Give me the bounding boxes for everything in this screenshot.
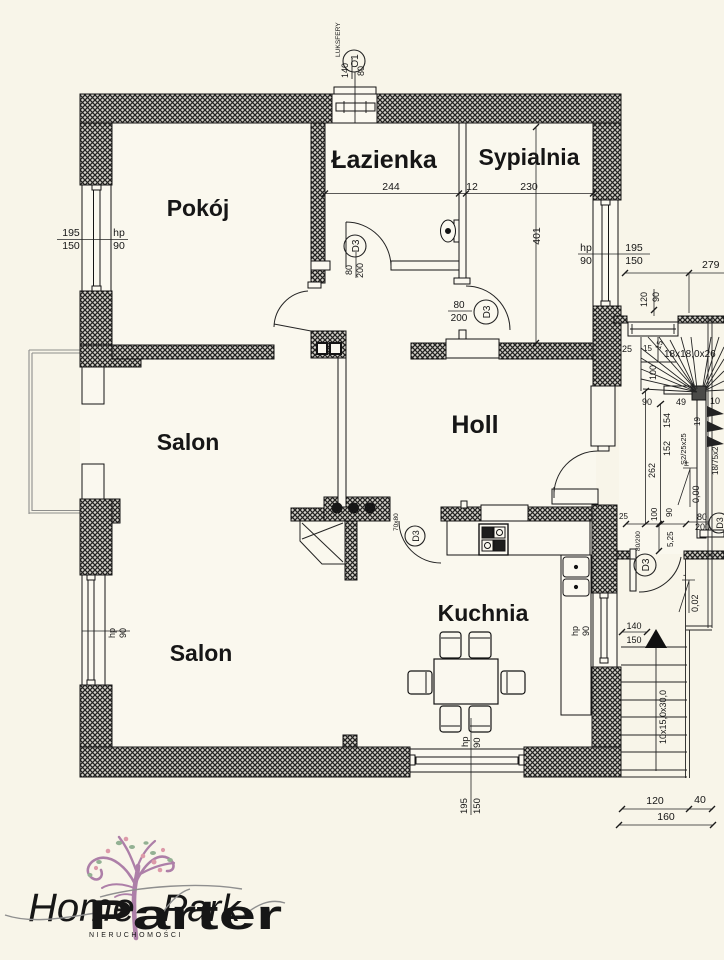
svg-text:154: 154 <box>662 413 672 428</box>
svg-text:19: 19 <box>693 417 702 426</box>
svg-text:10: 10 <box>710 396 720 406</box>
svg-text:120: 120 <box>646 795 664 807</box>
svg-text:LUKSFERY: LUKSFERY <box>335 22 342 57</box>
svg-text:70x80: 70x80 <box>393 513 400 531</box>
svg-text:195: 195 <box>459 798 470 814</box>
svg-text:140: 140 <box>626 621 641 631</box>
svg-text:Holl: Holl <box>451 411 498 439</box>
svg-text:-: - <box>683 570 686 580</box>
svg-text:Salon: Salon <box>157 429 220 455</box>
svg-text:90: 90 <box>580 255 592 267</box>
svg-text:90: 90 <box>113 240 125 252</box>
svg-text:90: 90 <box>665 508 674 517</box>
svg-text:D3: D3 <box>411 530 421 542</box>
svg-text:152: 152 <box>662 441 672 456</box>
svg-text:5,25: 5,25 <box>666 531 675 547</box>
svg-text:25: 25 <box>619 512 628 521</box>
svg-text:D3: D3 <box>482 305 493 318</box>
svg-text:90: 90 <box>118 628 128 638</box>
svg-text:hp: hp <box>580 242 592 254</box>
svg-text:80: 80 <box>344 265 354 275</box>
svg-text:Sypialnia: Sypialnia <box>479 144 580 170</box>
svg-text:90: 90 <box>642 397 652 407</box>
svg-text:D3: D3 <box>351 239 362 252</box>
svg-text:18/75x2: 18/75x2 <box>711 446 720 475</box>
svg-text:15: 15 <box>643 344 652 353</box>
svg-text:0,02: 0,02 <box>690 594 700 612</box>
svg-text:160: 160 <box>657 811 675 823</box>
svg-text:D3: D3 <box>715 517 724 529</box>
svg-text:18x18,0x26: 18x18,0x26 <box>664 349 716 360</box>
svg-text:Pokój: Pokój <box>167 195 230 221</box>
svg-text:80: 80 <box>697 512 707 522</box>
svg-text:40: 40 <box>694 794 706 806</box>
svg-text:279: 279 <box>702 259 720 271</box>
svg-text:hp: hp <box>107 628 117 638</box>
svg-text:150: 150 <box>472 798 483 814</box>
svg-text:±: ± <box>684 458 689 468</box>
svg-text:90: 90 <box>472 737 483 748</box>
svg-text:Kuchnia: Kuchnia <box>438 600 529 626</box>
svg-text:80/200: 80/200 <box>635 531 642 551</box>
svg-text:150: 150 <box>625 255 643 267</box>
svg-text:NIERUCHOMOŚCI: NIERUCHOMOŚCI <box>89 930 183 939</box>
svg-text:120: 120 <box>639 292 649 307</box>
svg-text:Parter: Parter <box>88 891 282 938</box>
svg-text:90: 90 <box>651 292 661 302</box>
svg-text:0,00: 0,00 <box>691 485 701 503</box>
svg-text:200: 200 <box>695 522 710 532</box>
svg-text:Salon: Salon <box>170 640 233 666</box>
svg-text:244: 244 <box>382 181 400 193</box>
svg-text:10x15,0x30,0: 10x15,0x30,0 <box>658 690 668 744</box>
svg-text:100: 100 <box>650 507 659 521</box>
svg-text:100: 100 <box>648 365 658 380</box>
svg-text:140: 140 <box>340 63 350 78</box>
svg-text:230: 230 <box>520 181 538 193</box>
svg-text:150: 150 <box>62 240 80 252</box>
svg-text:Łazienka: Łazienka <box>331 146 438 174</box>
svg-text:262: 262 <box>647 463 657 478</box>
svg-text:hp: hp <box>570 626 580 636</box>
svg-text:D3: D3 <box>641 558 652 571</box>
svg-text:195: 195 <box>625 242 643 254</box>
svg-text:80: 80 <box>356 66 366 76</box>
svg-text:25: 25 <box>622 344 632 354</box>
svg-text:401: 401 <box>531 227 543 245</box>
svg-text:150: 150 <box>626 635 641 645</box>
svg-text:hp: hp <box>460 736 471 747</box>
svg-text:200: 200 <box>355 263 365 278</box>
svg-text:80: 80 <box>453 300 465 311</box>
svg-text:90: 90 <box>581 626 591 636</box>
svg-text:200: 200 <box>451 313 468 324</box>
svg-text:195: 195 <box>62 227 80 239</box>
svg-text:hp: hp <box>113 227 125 239</box>
svg-text:49: 49 <box>676 397 686 407</box>
